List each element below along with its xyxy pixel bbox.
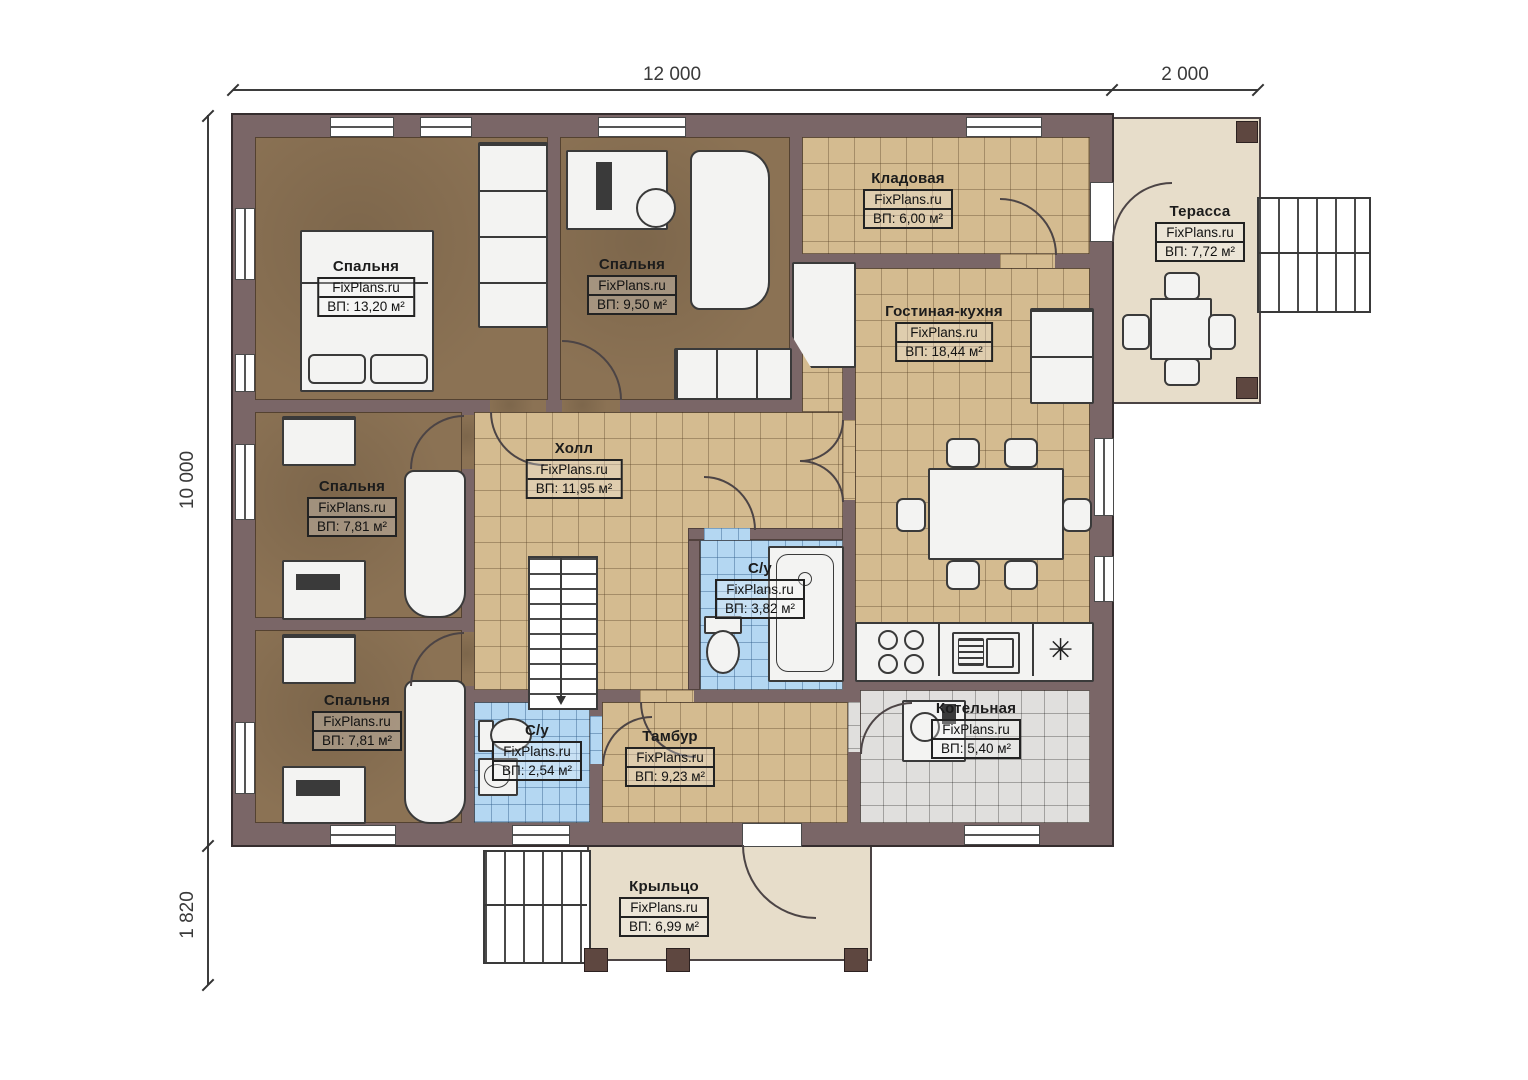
stairs-arrow — [556, 696, 566, 705]
porch-pillar — [584, 948, 608, 972]
terrace-pillar — [1236, 377, 1258, 399]
room-label-bedroom-1: Спальня FixPlans.ru ВП: 13,20 м² — [317, 258, 415, 317]
room-label-vestibule: Тамбур FixPlans.ru ВП: 9,23 м² — [625, 728, 715, 787]
door-opening — [562, 400, 620, 412]
dimension-label-height-main: 10 000 — [177, 451, 199, 509]
pillow — [370, 354, 428, 384]
watermark: FixPlans.ru — [621, 899, 707, 916]
toilet-bowl — [706, 630, 740, 674]
stairs-direction-line — [560, 558, 562, 698]
room-info-box: FixPlans.ru ВП: 7,72 м² — [1155, 222, 1245, 262]
room-name: Кладовая — [863, 170, 953, 187]
window — [1094, 438, 1114, 516]
room-area: ВП: 7,81 м² — [314, 730, 400, 749]
pillow — [308, 354, 366, 384]
stove-burner — [904, 654, 924, 674]
room-label-storage: Кладовая FixPlans.ru ВП: 6,00 м² — [863, 170, 953, 229]
hall-stairs — [528, 556, 598, 710]
room-label-bedroom-4: Спальня FixPlans.ru ВП: 7,81 м² — [312, 692, 402, 751]
room-name: С/у — [715, 560, 805, 577]
bed — [404, 470, 466, 618]
door-opening — [490, 400, 546, 412]
shelf-unit — [674, 348, 792, 400]
watermark: FixPlans.ru — [897, 324, 991, 341]
terrace-chair — [1164, 272, 1200, 300]
door-opening — [848, 702, 860, 752]
watermark: FixPlans.ru — [314, 713, 400, 730]
dining-chair — [1062, 498, 1092, 532]
room-info-box: FixPlans.ru ВП: 18,44 м² — [895, 322, 993, 362]
room-area: ВП: 7,81 м² — [309, 516, 395, 535]
sofa — [690, 150, 770, 310]
window — [235, 722, 255, 794]
watermark: FixPlans.ru — [494, 743, 580, 760]
wardrobe — [282, 634, 356, 684]
watermark: FixPlans.ru — [1157, 224, 1243, 241]
dining-chair — [946, 438, 980, 468]
room-label-hall: Холл FixPlans.ru ВП: 11,95 м² — [526, 440, 623, 499]
watermark: FixPlans.ru — [309, 499, 395, 516]
room-info-box: FixPlans.ru ВП: 6,00 м² — [863, 189, 953, 229]
room-info-box: FixPlans.ru ВП: 7,81 м² — [312, 711, 402, 751]
watermark: FixPlans.ru — [865, 191, 951, 208]
room-name: Холл — [526, 440, 623, 457]
room-info-box: FixPlans.ru ВП: 11,95 м² — [526, 459, 623, 499]
room-area: ВП: 7,72 м² — [1157, 241, 1243, 260]
stove-burner — [904, 630, 924, 650]
watermark: FixPlans.ru — [717, 581, 803, 598]
terrace-stairs — [1257, 197, 1371, 313]
stove-burner — [878, 654, 898, 674]
room-info-box: FixPlans.ru ВП: 6,99 м² — [619, 897, 709, 937]
wardrobe — [478, 142, 548, 328]
room-label-bedroom-2: Спальня FixPlans.ru ВП: 9,50 м² — [587, 256, 677, 315]
room-area: ВП: 9,23 м² — [627, 766, 713, 785]
terrace-table — [1150, 298, 1212, 360]
room-name: Спальня — [317, 258, 415, 275]
room-label-bathroom-1: С/у FixPlans.ru ВП: 3,82 м² — [715, 560, 805, 619]
kitchen-cabinet — [1030, 308, 1094, 404]
room-info-box: FixPlans.ru ВП: 2,54 м² — [492, 741, 582, 781]
asterisk-icon: ✳ — [1048, 636, 1073, 666]
dimension-line-top-main — [233, 89, 1112, 91]
dimension-line-left-main — [207, 115, 209, 845]
terrace-door-opening — [1090, 182, 1114, 242]
monitor — [596, 162, 612, 210]
room-name: Гостиная-кухня — [885, 303, 1003, 320]
room-area: ВП: 6,99 м² — [621, 916, 707, 935]
dimension-label-width-main: 12 000 — [643, 64, 701, 86]
door-opening — [1000, 254, 1055, 268]
dimension-line-left-bottom — [207, 845, 209, 985]
porch-stairs-direction-line — [483, 904, 587, 906]
room-info-box: FixPlans.ru ВП: 13,20 м² — [317, 277, 415, 317]
room-label-living-kitchen: Гостиная-кухня FixPlans.ru ВП: 18,44 м² — [885, 303, 1003, 362]
bathroom-1-wall-left — [688, 540, 700, 690]
room-label-porch: Крыльцо FixPlans.ru ВП: 6,99 м² — [619, 878, 709, 937]
bed — [404, 680, 466, 824]
room-name: Спальня — [587, 256, 677, 273]
terrace-stairs-direction-line — [1257, 252, 1369, 254]
room-label-boiler-room: Котельная FixPlans.ru ВП: 5,40 м² — [931, 700, 1021, 759]
porch-pillar — [844, 948, 868, 972]
sink-basin — [986, 638, 1014, 668]
window — [235, 354, 255, 392]
room-area: ВП: 2,54 м² — [494, 760, 580, 779]
window — [598, 117, 686, 137]
dining-chair — [946, 560, 980, 590]
room-info-box: FixPlans.ru ВП: 9,50 м² — [587, 275, 677, 315]
counter-divider — [1032, 624, 1034, 676]
room-area: ВП: 11,95 м² — [528, 478, 621, 497]
dimension-line-top-right — [1112, 89, 1258, 91]
window — [235, 208, 255, 280]
dining-chair — [896, 498, 926, 532]
desk-chair — [636, 188, 676, 228]
door-opening — [640, 690, 694, 702]
wardrobe — [282, 416, 356, 466]
room-name: С/у — [492, 722, 582, 739]
counter-divider — [938, 624, 940, 676]
dining-chair — [1004, 438, 1038, 468]
terrace-pillar — [1236, 121, 1258, 143]
watermark: FixPlans.ru — [528, 461, 621, 478]
terrace-chair — [1122, 314, 1150, 350]
room-area: ВП: 18,44 м² — [897, 341, 991, 360]
room-name: Спальня — [307, 478, 397, 495]
room-area: ВП: 6,00 м² — [865, 208, 951, 227]
monitor — [296, 574, 340, 590]
desk — [282, 560, 366, 620]
porch-stairs — [483, 850, 591, 964]
entrance-door-opening — [742, 823, 802, 847]
room-area: ВП: 5,40 м² — [933, 738, 1019, 757]
window — [964, 825, 1040, 845]
room-info-box: FixPlans.ru ВП: 9,23 м² — [625, 747, 715, 787]
terrace-chair — [1208, 314, 1236, 350]
window — [966, 117, 1042, 137]
sink-drainboard — [958, 638, 984, 666]
window — [512, 825, 570, 845]
room-area: ВП: 9,50 м² — [589, 294, 675, 313]
window — [420, 117, 472, 137]
monitor — [296, 780, 340, 796]
room-label-bathroom-2: С/у FixPlans.ru ВП: 2,54 м² — [492, 722, 582, 781]
room-info-box: FixPlans.ru ВП: 7,81 м² — [307, 497, 397, 537]
room-name: Котельная — [931, 700, 1021, 717]
room-name: Спальня — [312, 692, 402, 709]
dimension-label-width-terrace: 2 000 — [1161, 64, 1209, 86]
window — [330, 825, 396, 845]
room-info-box: FixPlans.ru ВП: 3,82 м² — [715, 579, 805, 619]
window — [1094, 556, 1114, 602]
dimension-label-height-porch: 1 820 — [177, 891, 199, 939]
room-name: Крыльцо — [619, 878, 709, 895]
window — [235, 444, 255, 520]
porch-pillar — [666, 948, 690, 972]
watermark: FixPlans.ru — [627, 749, 713, 766]
dining-table — [928, 468, 1064, 560]
room-info-box: FixPlans.ru ВП: 5,40 м² — [931, 719, 1021, 759]
room-name: Терасса — [1155, 203, 1245, 220]
watermark: FixPlans.ru — [319, 279, 413, 296]
floor-plan-canvas: 12 000 2 000 10 000 1 820 — [0, 0, 1528, 1080]
watermark: FixPlans.ru — [589, 277, 675, 294]
room-name: Тамбур — [625, 728, 715, 745]
room-label-bedroom-3: Спальня FixPlans.ru ВП: 7,81 м² — [307, 478, 397, 537]
room-area: ВП: 3,82 м² — [717, 598, 803, 617]
stove-burner — [878, 630, 898, 650]
watermark: FixPlans.ru — [933, 721, 1019, 738]
terrace-chair — [1164, 358, 1200, 386]
door-opening — [590, 716, 602, 764]
room-area: ВП: 13,20 м² — [319, 296, 413, 315]
double-door-opening — [843, 420, 855, 500]
window — [330, 117, 394, 137]
room-label-terrace: Терасса FixPlans.ru ВП: 7,72 м² — [1155, 203, 1245, 262]
dining-chair — [1004, 560, 1038, 590]
